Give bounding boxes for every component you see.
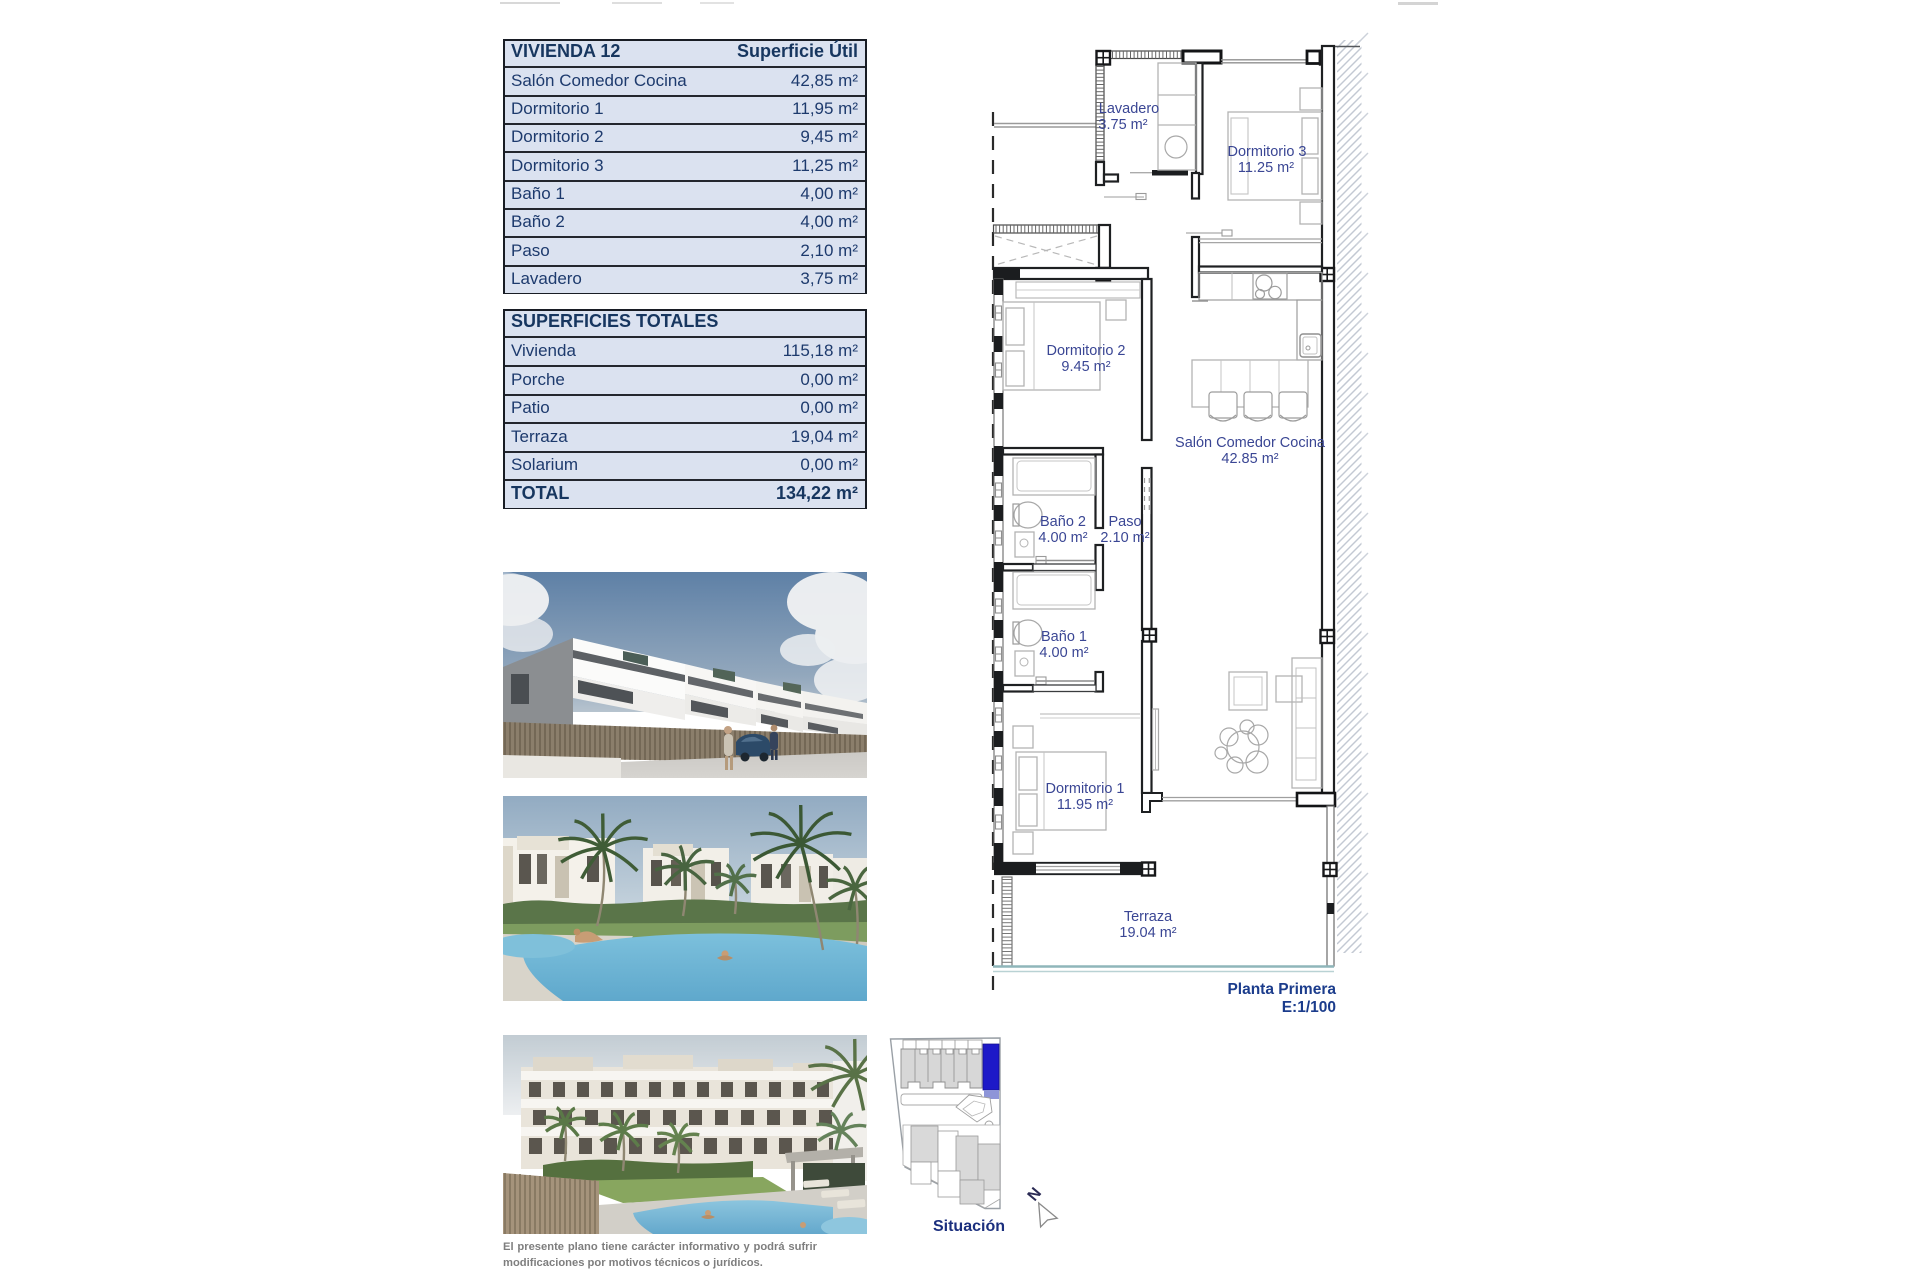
svg-text:N: N: [1025, 1185, 1045, 1205]
svg-text:Planta Primera: Planta Primera: [1227, 981, 1336, 998]
svg-text:42.85 m²: 42.85 m²: [1221, 451, 1278, 467]
svg-text:11.95 m²: 11.95 m²: [1057, 797, 1113, 813]
svg-text:Baño 1: Baño 1: [1041, 629, 1087, 645]
svg-text:Dormitorio 2: Dormitorio 2: [1047, 343, 1126, 359]
svg-text:11.25 m²: 11.25 m²: [1238, 160, 1294, 176]
svg-text:9.45 m²: 9.45 m²: [1061, 359, 1110, 375]
svg-text:E:1/100: E:1/100: [1282, 999, 1336, 1016]
svg-text:Situación: Situación: [933, 1218, 1005, 1235]
svg-text:4.00 m²: 4.00 m²: [1039, 645, 1088, 661]
svg-text:Paso: Paso: [1108, 514, 1141, 530]
svg-text:4.00 m²: 4.00 m²: [1038, 530, 1087, 546]
svg-text:Terraza: Terraza: [1124, 909, 1173, 925]
svg-text:Dormitorio 3: Dormitorio 3: [1228, 144, 1307, 160]
svg-text:2.10 m²: 2.10 m²: [1100, 530, 1149, 546]
svg-text:Lavadero: Lavadero: [1099, 101, 1159, 117]
svg-text:3.75 m²: 3.75 m²: [1098, 117, 1147, 133]
svg-text:Baño 2: Baño 2: [1040, 514, 1086, 530]
svg-text:Dormitorio 1: Dormitorio 1: [1046, 781, 1125, 797]
svg-text:Salón Comedor Cocina: Salón Comedor Cocina: [1175, 435, 1326, 451]
svg-text:19.04 m²: 19.04 m²: [1119, 925, 1176, 941]
